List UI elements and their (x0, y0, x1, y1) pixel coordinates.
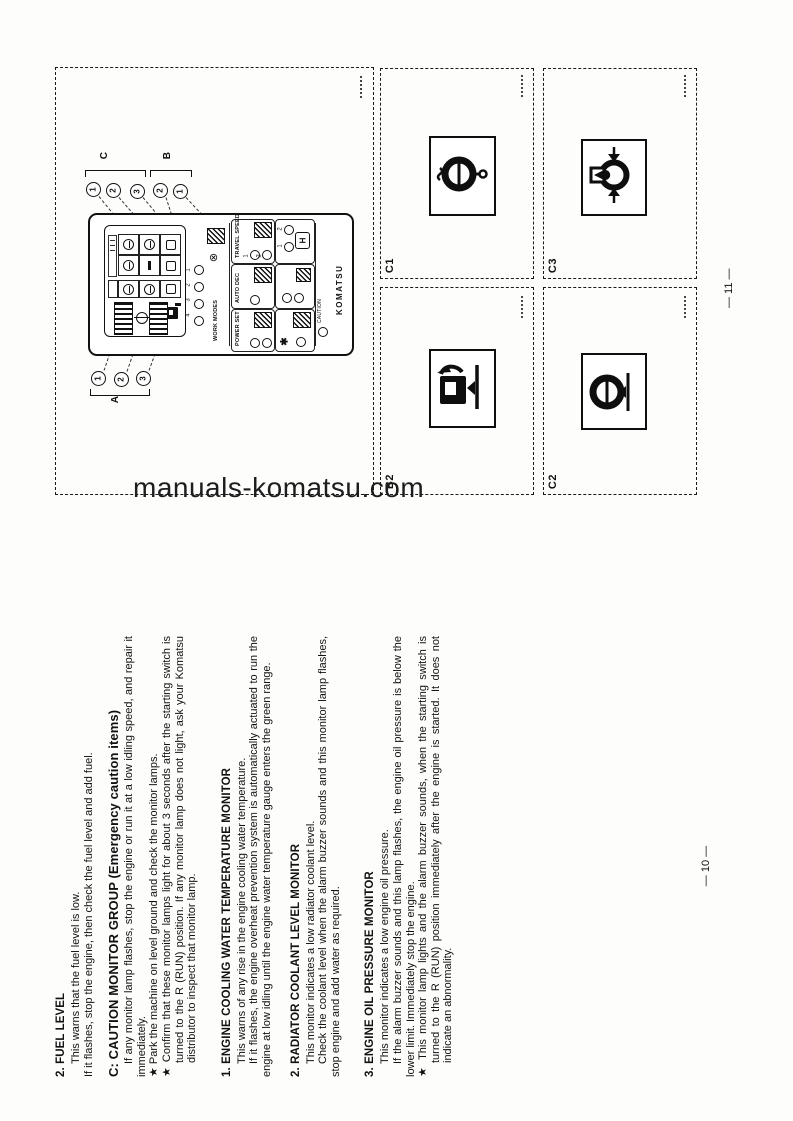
section-fuel-level: 2. FUEL LEVEL This warns that the fuel l… (55, 636, 95, 1077)
aux-button-cell (275, 264, 315, 309)
section-title: 1. ENGINE COOLING WATER TEMPERATURE MONI… (221, 636, 234, 1077)
monitor-panel-drawing: ⊗ 1 2 3 4 WORK MODES TRAVEL SPEED 1 2 AU… (88, 213, 354, 356)
washer-button-cell: ✱ (275, 309, 315, 352)
section-caution-monitor-group: C: CAUTION MONITOR GROUP (Emergency caut… (106, 636, 199, 1077)
work-mode-lamps (194, 265, 204, 326)
buzzer-cancel-icon: ⊗ (207, 253, 220, 262)
cluster-index-strip (108, 235, 117, 277)
bracket-group-b (150, 170, 192, 177)
text-column: 2. FUEL LEVEL This warns that the fuel l… (55, 636, 455, 1077)
paragraph: If it flashes, stop the engine, then che… (83, 636, 96, 1077)
panel-divider (315, 223, 316, 346)
callout-c2: 2 (106, 183, 121, 198)
bracket-group-a (90, 389, 150, 396)
radiator-coolant-level-icon (581, 139, 647, 216)
callout-a3: 3 (136, 371, 151, 386)
paragraph: If it flashes, the engine overheat preve… (248, 636, 273, 1077)
fuel-level-icon (429, 349, 496, 428)
star-note: ★ Confirm that these monitor lamps light… (161, 636, 199, 1077)
corner-code-mark (521, 75, 524, 97)
caution-label: CAUTION (318, 295, 323, 323)
lamp-cell (160, 280, 181, 298)
icon-box-b2: B2 (380, 287, 534, 495)
section-water-temperature-monitor: 1. ENGINE COOLING WATER TEMPERATURE MONI… (221, 636, 274, 1077)
engine-oil-pressure-icon (581, 353, 647, 430)
corner-code-mark (521, 296, 524, 318)
travel-speed-button: TRAVEL SPEED 1 2 (231, 219, 275, 264)
corner-code-mark (684, 75, 687, 97)
icon-box-label: C2 (548, 474, 559, 489)
paragraph: This warns that the fuel level is low. (70, 636, 83, 1077)
warning-lamp-grid (118, 234, 181, 276)
auto-dec-button: AUTO DEC (231, 264, 275, 309)
page-number-10: — 10 — (700, 811, 712, 921)
icon-box-c2: C2 (543, 287, 697, 495)
callout-c1: 1 (86, 182, 101, 197)
snowflake-icon: ✱ (280, 337, 291, 345)
star-note: ★ This monitor lamp lights and the alarm… (417, 636, 455, 1077)
paragraph: This monitor indicates a low engine oil … (379, 636, 392, 1077)
group-label-c: C (100, 152, 110, 159)
section-oil-pressure-monitor: 3. ENGINE OIL PRESSURE MONITOR This moni… (364, 636, 455, 1077)
lamp-cell (118, 280, 139, 298)
panel-divider (229, 223, 230, 346)
section-title: C: CAUTION MONITOR GROUP (Emergency caut… (106, 636, 121, 1077)
page-number-11: — 11 — (724, 250, 735, 308)
work-modes-label: WORK MODES (214, 293, 220, 341)
gauge-symbol-icon (136, 312, 148, 324)
paragraph: This monitor indicates a low radiator co… (305, 636, 318, 1077)
corner-code-mark (360, 76, 363, 98)
icon-box-c1: C1 (380, 68, 534, 279)
komatsu-logo: KOMATSU (336, 229, 344, 315)
paragraph: This warns of any rise in the engine coo… (236, 636, 249, 1077)
water-temperature-icon (429, 136, 496, 216)
paragraph: If any monitor lamp flashes, stop the en… (123, 636, 148, 1077)
gauge-cluster (104, 225, 186, 337)
paragraph: If the alarm buzzer sounds and this lamp… (392, 636, 417, 1077)
warning-lamp (118, 234, 139, 255)
star-note: ★ Park the machine on level ground and c… (148, 636, 161, 1077)
power-set-button: POWER SET (231, 309, 275, 352)
warning-lamp (139, 255, 160, 276)
callout-a1: 1 (91, 371, 106, 386)
lamp-row (108, 280, 181, 298)
icon-box-label: C1 (385, 258, 396, 273)
group-label-a: A (111, 396, 121, 403)
warning-lamp (160, 234, 181, 255)
fuel-bar-gauge (149, 302, 168, 335)
group-label-b: B (163, 152, 173, 159)
lamp-cell (139, 280, 160, 298)
watermark: manuals-komatsu.com (133, 472, 424, 504)
warning-lamp (160, 255, 181, 276)
lamp-cell (108, 280, 118, 298)
fuel-symbol-icon (167, 307, 178, 319)
work-mode-digits: 1 2 3 4 (187, 267, 190, 318)
buzzer-cancel-button (207, 228, 225, 244)
warning-lamp (118, 255, 139, 276)
section-title: 3. ENGINE OIL PRESSURE MONITOR (364, 636, 377, 1077)
scanned-manual-page: 2. FUEL LEVEL This warns that the fuel l… (0, 0, 793, 1121)
section-title: 2. FUEL LEVEL (55, 636, 68, 1077)
corner-code-mark (684, 296, 687, 318)
bracket-group-c (85, 170, 146, 177)
callout-b2: 2 (153, 183, 168, 198)
section-title: 2. RADIATOR COOLANT LEVEL MONITOR (290, 636, 303, 1077)
callout-a2: 2 (114, 372, 129, 387)
section-radiator-coolant-monitor: 2. RADIATOR COOLANT LEVEL MONITOR This m… (290, 636, 343, 1077)
temperature-bar-gauge (114, 302, 133, 335)
icon-box-c3: C3 (543, 68, 697, 279)
paragraph: Check the coolant level when the alarm b… (317, 636, 342, 1077)
warning-lamp (139, 234, 160, 255)
mode-h-button-cell: 2 1 H (275, 219, 315, 264)
icon-box-label: C3 (548, 258, 559, 273)
